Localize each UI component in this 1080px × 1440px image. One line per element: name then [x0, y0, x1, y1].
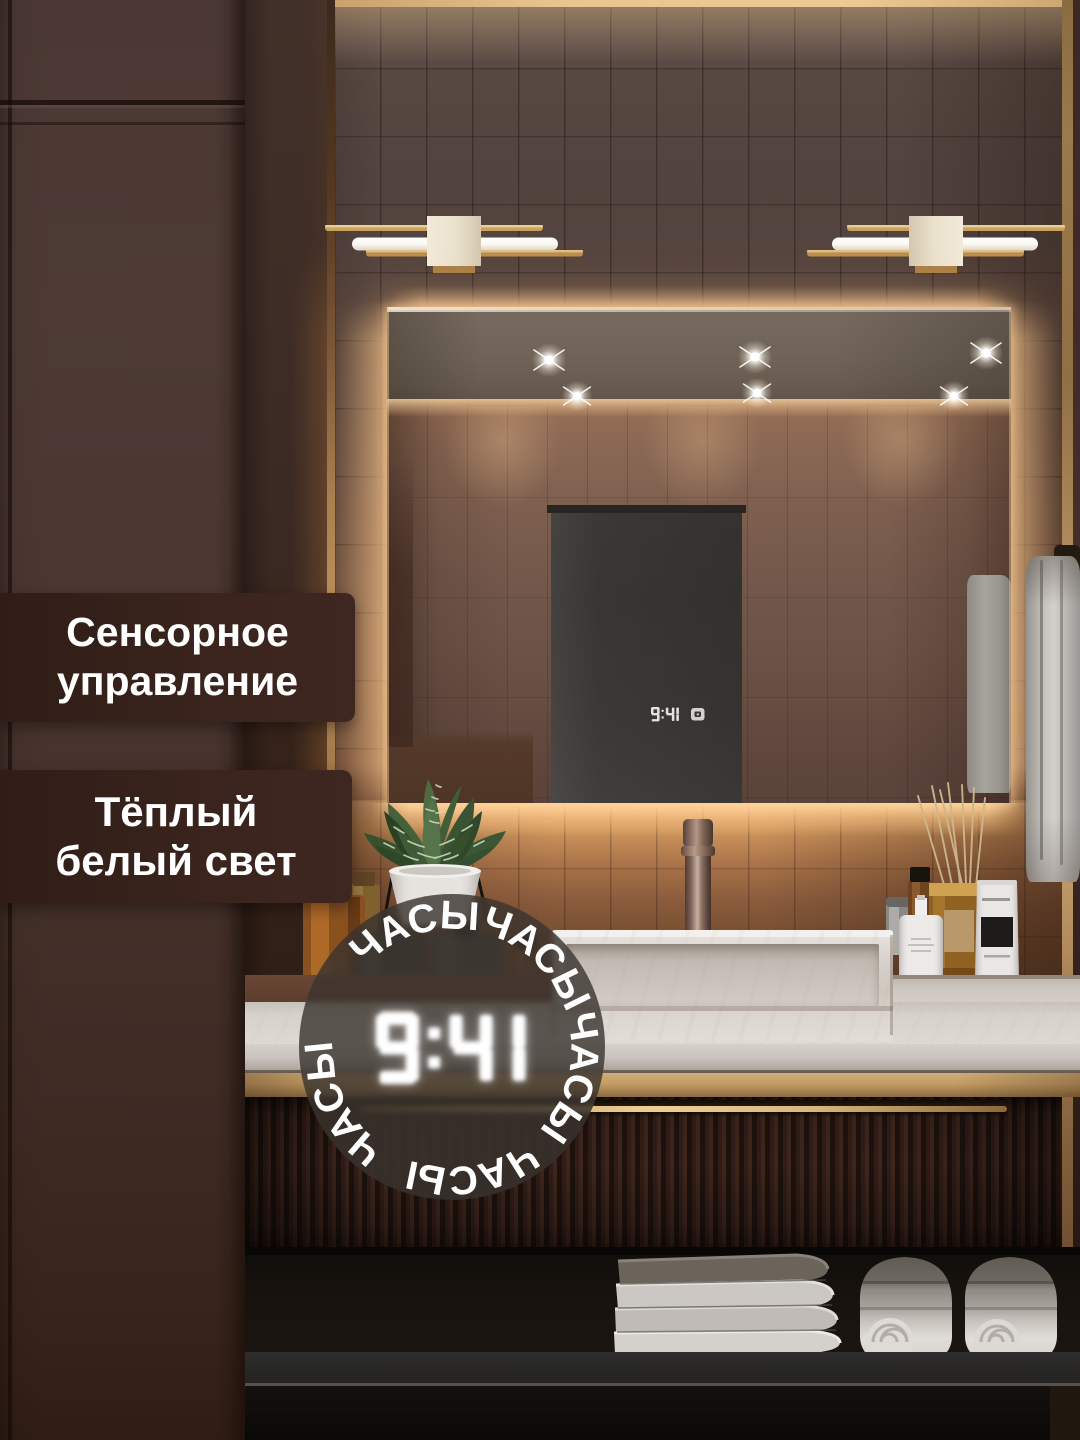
svg-text:ЧАСЫ: ЧАСЫ	[477, 899, 599, 1017]
svg-text:ЧАСЫ: ЧАСЫ	[342, 893, 481, 973]
svg-text:ЧАСЫ: ЧАСЫ	[297, 1040, 391, 1174]
svg-text:ЧАСЫ: ЧАСЫ	[532, 1009, 607, 1151]
svg-text:ЧАСЫ: ЧАСЫ	[402, 1134, 546, 1203]
